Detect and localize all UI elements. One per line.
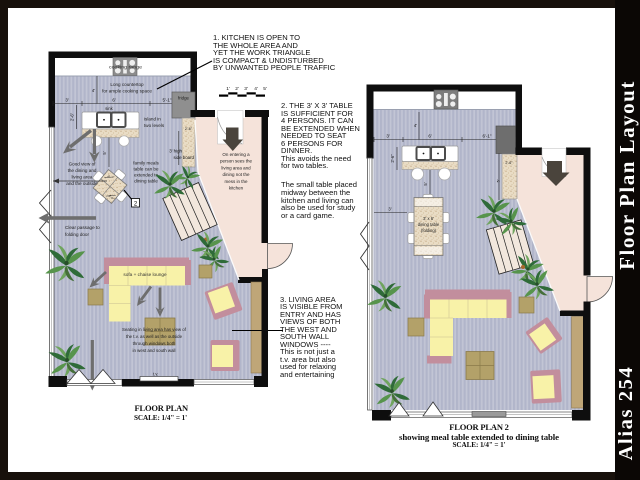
svg-text:4': 4'	[254, 86, 258, 92]
svg-text:3' x 6': 3' x 6'	[423, 216, 434, 221]
svg-text:3': 3'	[386, 134, 390, 139]
svg-text:for ample cooking space: for ample cooking space	[102, 89, 152, 94]
svg-text:sink: sink	[105, 106, 113, 111]
svg-text:t.v.: t.v.	[153, 372, 158, 377]
svg-text:and the outside: and the outside	[66, 181, 98, 186]
svg-text:(folding): (folding)	[421, 228, 437, 233]
svg-text:5'-1": 5'-1"	[163, 98, 172, 103]
svg-text:living area and: living area and	[221, 165, 251, 170]
svg-text:3': 3'	[65, 98, 69, 103]
svg-text:2'-6": 2'-6"	[70, 112, 75, 121]
svg-text:side board: side board	[173, 155, 194, 160]
svg-text:living area: living area	[72, 175, 93, 180]
svg-text:the t.v. as well as the outsid: the t.v. as well as the outside	[126, 334, 183, 339]
svg-text:On entering a: On entering a	[222, 152, 250, 157]
svg-text:Clear passage to: Clear passage to	[65, 225, 100, 230]
svg-text:3': 3'	[388, 207, 391, 212]
svg-text:kitchen: kitchen	[229, 186, 244, 191]
svg-text:family meals: family meals	[133, 161, 159, 166]
svg-text:2'-6": 2'-6"	[505, 161, 513, 165]
svg-text:table can be: table can be	[133, 167, 158, 172]
svg-text:dining table: dining table	[134, 179, 158, 184]
svg-text:3' high: 3' high	[169, 149, 182, 154]
svg-text:Seating in living area has vie: Seating in living area has view of	[122, 327, 187, 332]
svg-text:6'-1": 6'-1"	[483, 134, 492, 139]
svg-text:2'-6": 2'-6"	[390, 154, 395, 163]
svg-text:extended to: extended to	[134, 173, 158, 178]
svg-text:2': 2'	[235, 86, 239, 92]
svg-text:4': 4'	[414, 123, 417, 128]
svg-text:5': 5'	[102, 151, 107, 154]
svg-text:2'-6": 2'-6"	[185, 127, 193, 131]
svg-text:folding door: folding door	[65, 232, 89, 237]
svg-text:island in: island in	[144, 117, 161, 122]
svg-text:6': 6'	[428, 134, 432, 139]
svg-text:Good view of: Good view of	[69, 162, 97, 167]
svg-text:two levels: two levels	[144, 123, 165, 128]
svg-text:the dining and: the dining and	[68, 168, 97, 173]
svg-text:dining not the: dining not the	[222, 172, 250, 177]
svg-text:dining table: dining table	[418, 222, 440, 227]
svg-text:through windows both: through windows both	[133, 341, 176, 346]
svg-text:4': 4'	[92, 88, 95, 93]
svg-text:Long countertop: Long countertop	[110, 82, 144, 87]
svg-text:sofa + chaise lounge: sofa + chaise lounge	[123, 272, 167, 277]
svg-text:5': 5'	[423, 182, 428, 185]
svg-text:person sees the: person sees the	[220, 159, 253, 164]
svg-text:1': 1'	[226, 86, 230, 92]
svg-text:5': 5'	[263, 86, 267, 92]
svg-text:mess in the: mess in the	[224, 179, 248, 184]
svg-text:fridge: fridge	[178, 96, 190, 101]
svg-text:6': 6'	[112, 98, 116, 103]
svg-text:5': 5'	[497, 179, 501, 182]
svg-text:cooking range: cooking range	[109, 64, 143, 69]
svg-text:3': 3'	[244, 86, 248, 92]
svg-text:in west and south wall: in west and south wall	[133, 348, 176, 353]
